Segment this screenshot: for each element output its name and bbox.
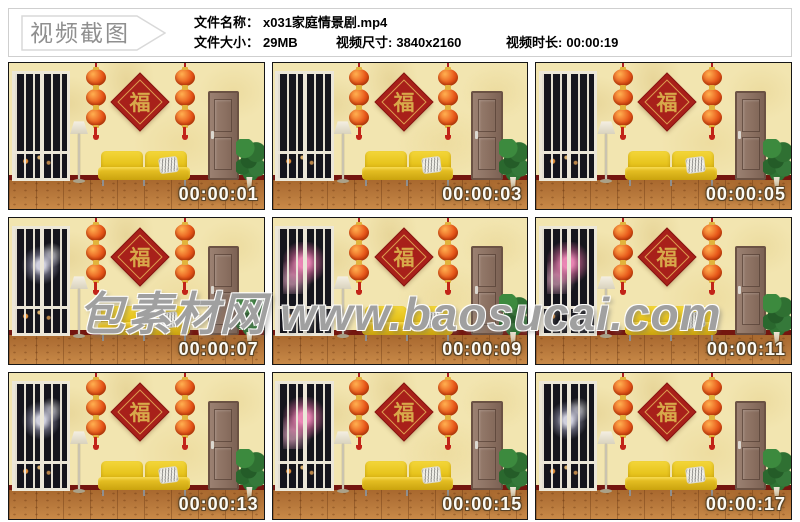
- lantern-icon: [702, 379, 722, 396]
- lantern-icon: [349, 399, 369, 416]
- lantern-tassel: [183, 437, 186, 446]
- lantern-icon: [86, 69, 106, 86]
- striped-pillow: [158, 466, 179, 484]
- potted-plant: [499, 294, 527, 344]
- lantern-tassel: [358, 127, 361, 136]
- frame-timestamp: 00:00:05: [706, 184, 786, 205]
- header-bar: 视频截图 文件名称：x031家庭情景剧.mp4 文件大小：29MB视频尺寸:38…: [8, 8, 792, 57]
- sofa-legs: [629, 335, 713, 341]
- lamp-base: [600, 179, 612, 183]
- wooden-door: [735, 91, 766, 179]
- window-divider: [303, 229, 307, 333]
- window-rail: [15, 151, 68, 154]
- lantern-icon: [702, 224, 722, 241]
- lantern-icon: [86, 244, 106, 261]
- file-size-value: 29MB: [263, 35, 298, 50]
- potted-plant: [763, 449, 791, 499]
- lantern-icon: [86, 419, 106, 436]
- door-knob: [211, 286, 214, 294]
- lattice-window: [12, 381, 71, 491]
- window-divider: [567, 74, 571, 178]
- lamp-base: [600, 489, 612, 493]
- fu-banner-text: 福: [384, 82, 424, 122]
- door-knob: [475, 441, 478, 449]
- lamp-shade: [334, 276, 352, 289]
- lantern-string-right: [174, 63, 196, 143]
- plant-leaves: [236, 139, 264, 180]
- video-frame-thumbnail[interactable]: 福 00:00:17: [535, 372, 792, 520]
- lamp-shade: [597, 121, 615, 134]
- lantern-icon: [613, 224, 633, 241]
- plant-leaves: [763, 294, 791, 335]
- wooden-door: [471, 401, 502, 489]
- yellow-sofa: [98, 151, 190, 186]
- window-rail: [542, 151, 595, 154]
- lantern-icon: [613, 69, 633, 86]
- video-dimensions-group: 视频尺寸:3840x2160: [336, 33, 506, 53]
- video-duration-value: 00:00:19: [566, 35, 618, 50]
- lantern-tassel: [94, 282, 97, 291]
- door-knob: [475, 286, 478, 294]
- lantern-icon: [438, 399, 458, 416]
- lantern-tassel: [447, 437, 450, 446]
- window-rail: [542, 306, 595, 309]
- lantern-tassel: [183, 127, 186, 136]
- lantern-string-right: [701, 218, 723, 298]
- floor-lamp: [334, 431, 352, 492]
- lantern-icon: [175, 399, 195, 416]
- floor-lamp: [597, 121, 615, 182]
- lantern-icon: [438, 69, 458, 86]
- lattice-window: [275, 226, 334, 336]
- video-frame-thumbnail[interactable]: 福 00:00:03: [272, 62, 529, 210]
- yellow-sofa: [362, 461, 454, 496]
- lantern-icon: [702, 89, 722, 106]
- video-duration-label: 视频时长:: [506, 35, 562, 50]
- yellow-sofa: [362, 306, 454, 341]
- lamp-base: [73, 489, 85, 493]
- lantern-icon: [349, 244, 369, 261]
- lantern-string-right: [701, 63, 723, 143]
- lantern-icon: [613, 264, 633, 281]
- striped-pillow: [685, 156, 706, 174]
- floor-lamp: [70, 431, 88, 492]
- window-divider: [567, 229, 571, 333]
- lantern-icon: [613, 419, 633, 436]
- lattice-window: [12, 226, 71, 336]
- lantern-icon: [86, 379, 106, 396]
- file-info: 文件名称：x031家庭情景剧.mp4 文件大小：29MB视频尺寸:3840x21…: [194, 13, 618, 53]
- file-name-row: 文件名称：x031家庭情景剧.mp4: [194, 13, 618, 33]
- potted-plant: [499, 449, 527, 499]
- lantern-tassel: [358, 437, 361, 446]
- lantern-icon: [438, 379, 458, 396]
- lantern-tassel: [711, 282, 714, 291]
- plant-leaves: [499, 294, 527, 335]
- lantern-icon: [175, 379, 195, 396]
- lattice-window: [12, 71, 71, 181]
- floor-lamp: [334, 121, 352, 182]
- lantern-icon: [349, 89, 369, 106]
- lantern-tassel: [94, 437, 97, 446]
- sofa-legs: [365, 490, 449, 496]
- sofa-legs: [365, 335, 449, 341]
- lamp-pole: [78, 444, 80, 489]
- lantern-string-right: [174, 373, 196, 453]
- lamp-base: [337, 334, 349, 338]
- floor-lamp: [334, 276, 352, 337]
- video-frame-thumbnail[interactable]: 福 00:00:11: [535, 217, 792, 365]
- frames-grid: 福 00:00:01: [8, 62, 792, 520]
- yellow-sofa: [625, 151, 717, 186]
- lamp-shade: [70, 276, 88, 289]
- fu-diamond-banner: 福: [112, 384, 169, 441]
- fu-diamond-banner: 福: [376, 229, 433, 286]
- lattice-window: [539, 71, 598, 181]
- yellow-sofa: [362, 151, 454, 186]
- lamp-pole: [605, 134, 607, 179]
- fu-diamond-banner: 福: [639, 229, 696, 286]
- lamp-base: [73, 334, 85, 338]
- wooden-door: [208, 246, 239, 334]
- wooden-door: [735, 246, 766, 334]
- lantern-icon: [613, 399, 633, 416]
- sofa-legs: [629, 180, 713, 186]
- lamp-pole: [78, 289, 80, 334]
- lantern-string-right: [701, 373, 723, 453]
- lantern-icon: [613, 109, 633, 126]
- lattice-window: [275, 381, 334, 491]
- lantern-icon: [438, 89, 458, 106]
- frame-timestamp: 00:00:09: [442, 339, 522, 360]
- fu-diamond-banner: 福: [376, 384, 433, 441]
- fu-banner-text: 福: [120, 82, 160, 122]
- wooden-door: [208, 91, 239, 179]
- lantern-string-right: [437, 373, 459, 453]
- lantern-icon: [613, 244, 633, 261]
- lamp-pole: [78, 134, 80, 179]
- lamp-shade: [334, 121, 352, 134]
- door-knob: [211, 441, 214, 449]
- fu-diamond-banner: 福: [112, 229, 169, 286]
- video-dimensions-value: 3840x2160: [396, 35, 461, 50]
- striped-pillow: [685, 311, 706, 329]
- fu-diamond-banner: 福: [112, 74, 169, 131]
- lamp-shade: [597, 431, 615, 444]
- frame-timestamp: 00:00:17: [706, 494, 786, 515]
- lantern-icon: [175, 224, 195, 241]
- door-knob: [475, 131, 478, 139]
- plant-leaves: [763, 449, 791, 490]
- screenshot-badge: 视频截图: [21, 15, 166, 51]
- window-divider: [40, 74, 44, 178]
- lamp-pole: [342, 134, 344, 179]
- lantern-icon: [438, 419, 458, 436]
- file-name-value: x031家庭情景剧.mp4: [263, 15, 387, 30]
- fu-diamond-banner: 福: [639, 384, 696, 441]
- file-name-label: 文件名称：: [194, 15, 259, 30]
- lantern-icon: [349, 379, 369, 396]
- lantern-tassel: [711, 127, 714, 136]
- lantern-icon: [702, 264, 722, 281]
- striped-pillow: [158, 311, 179, 329]
- fu-banner-text: 福: [647, 392, 687, 432]
- frame-timestamp: 00:00:07: [179, 339, 259, 360]
- file-meta-row: 文件大小：29MB视频尺寸:3840x2160视频时长:00:00:19: [194, 33, 618, 53]
- sofa-legs: [102, 490, 186, 496]
- lantern-icon: [86, 224, 106, 241]
- badge-label: 视频截图: [21, 15, 139, 51]
- sofa-legs: [102, 180, 186, 186]
- wooden-door: [208, 401, 239, 489]
- floor-lamp: [597, 276, 615, 337]
- lantern-tassel: [621, 127, 624, 136]
- lamp-shade: [70, 121, 88, 134]
- lantern-icon: [349, 224, 369, 241]
- lantern-icon: [438, 109, 458, 126]
- window-rail: [278, 151, 331, 154]
- lamp-shade: [70, 431, 88, 444]
- lantern-icon: [86, 399, 106, 416]
- lantern-string-right: [174, 218, 196, 298]
- floor-lamp: [597, 431, 615, 492]
- door-knob: [738, 441, 741, 449]
- yellow-sofa: [98, 461, 190, 496]
- lantern-icon: [702, 109, 722, 126]
- lantern-icon: [349, 69, 369, 86]
- lattice-window: [539, 226, 598, 336]
- video-frame-thumbnail[interactable]: 福 00:00:09: [272, 217, 529, 365]
- lantern-tassel: [447, 127, 450, 136]
- door-knob: [738, 286, 741, 294]
- yellow-sofa: [98, 306, 190, 341]
- potted-plant: [763, 294, 791, 344]
- lantern-icon: [438, 244, 458, 261]
- lantern-tassel: [94, 127, 97, 136]
- frame-timestamp: 00:00:13: [179, 494, 259, 515]
- lantern-tassel: [621, 437, 624, 446]
- lantern-tassel: [621, 282, 624, 291]
- fu-banner-text: 福: [384, 237, 424, 277]
- video-dimensions-label: 视频尺寸:: [336, 35, 392, 50]
- file-size-group: 文件大小：29MB: [194, 33, 336, 53]
- plant-leaves: [763, 139, 791, 180]
- lantern-icon: [613, 89, 633, 106]
- window-rail: [15, 461, 68, 464]
- window-rail: [278, 306, 331, 309]
- video-frame-thumbnail[interactable]: 福 00:00:01: [8, 62, 265, 210]
- window-divider: [303, 74, 307, 178]
- lamp-shade: [597, 276, 615, 289]
- video-frame-thumbnail[interactable]: 福 00:00:13: [8, 372, 265, 520]
- lantern-tassel: [183, 282, 186, 291]
- plant-leaves: [499, 449, 527, 490]
- striped-pillow: [685, 466, 706, 484]
- fu-banner-text: 福: [647, 237, 687, 277]
- lantern-icon: [438, 224, 458, 241]
- potted-plant: [236, 294, 264, 344]
- frame-timestamp: 00:00:01: [179, 184, 259, 205]
- video-frame-thumbnail[interactable]: 福 00:00:07: [8, 217, 265, 365]
- lantern-string-right: [437, 218, 459, 298]
- door-knob: [738, 131, 741, 139]
- lantern-icon: [175, 69, 195, 86]
- potted-plant: [236, 449, 264, 499]
- lantern-icon: [702, 419, 722, 436]
- lantern-tassel: [358, 282, 361, 291]
- window-divider: [303, 384, 307, 488]
- video-frame-thumbnail[interactable]: 福 00:00:05: [535, 62, 792, 210]
- lamp-shade: [334, 431, 352, 444]
- lantern-icon: [349, 419, 369, 436]
- lamp-base: [337, 179, 349, 183]
- lamp-base: [600, 334, 612, 338]
- fu-banner-text: 福: [120, 237, 160, 277]
- potted-plant: [763, 139, 791, 189]
- sofa-legs: [365, 180, 449, 186]
- sofa-legs: [629, 490, 713, 496]
- lantern-icon: [349, 109, 369, 126]
- lattice-window: [539, 381, 598, 491]
- lamp-base: [73, 179, 85, 183]
- fu-banner-text: 福: [647, 82, 687, 122]
- fu-diamond-banner: 福: [376, 74, 433, 131]
- lamp-pole: [605, 289, 607, 334]
- lantern-tassel: [447, 282, 450, 291]
- lantern-string-right: [437, 63, 459, 143]
- video-duration-group: 视频时长:00:00:19: [506, 33, 618, 53]
- wooden-door: [735, 401, 766, 489]
- lantern-icon: [613, 379, 633, 396]
- striped-pillow: [421, 311, 442, 329]
- lantern-icon: [702, 244, 722, 261]
- floor-lamp: [70, 276, 88, 337]
- window-divider: [567, 384, 571, 488]
- fu-banner-text: 福: [120, 392, 160, 432]
- wooden-door: [471, 91, 502, 179]
- door-knob: [211, 131, 214, 139]
- lantern-icon: [86, 109, 106, 126]
- lamp-pole: [342, 444, 344, 489]
- window-rail: [278, 461, 331, 464]
- frame-timestamp: 00:00:15: [442, 494, 522, 515]
- lantern-icon: [438, 264, 458, 281]
- video-frame-thumbnail[interactable]: 福 00:00:15: [272, 372, 529, 520]
- lantern-icon: [175, 109, 195, 126]
- plant-leaves: [236, 294, 264, 335]
- fu-diamond-banner: 福: [639, 74, 696, 131]
- lantern-icon: [86, 264, 106, 281]
- sofa-legs: [102, 335, 186, 341]
- window-rail: [542, 461, 595, 464]
- window-divider: [40, 229, 44, 333]
- lantern-icon: [175, 89, 195, 106]
- lantern-icon: [702, 69, 722, 86]
- frame-timestamp: 00:00:11: [707, 339, 786, 360]
- striped-pillow: [158, 156, 179, 174]
- lattice-window: [275, 71, 334, 181]
- plant-leaves: [499, 139, 527, 180]
- lantern-icon: [86, 89, 106, 106]
- window-divider: [40, 384, 44, 488]
- lamp-pole: [605, 444, 607, 489]
- striped-pillow: [421, 466, 442, 484]
- striped-pillow: [421, 156, 442, 174]
- potted-plant: [236, 139, 264, 189]
- floor-lamp: [70, 121, 88, 182]
- lantern-icon: [349, 264, 369, 281]
- fu-banner-text: 福: [384, 392, 424, 432]
- wooden-door: [471, 246, 502, 334]
- plant-leaves: [236, 449, 264, 490]
- file-size-label: 文件大小：: [194, 35, 259, 50]
- lantern-icon: [175, 419, 195, 436]
- lantern-icon: [175, 264, 195, 281]
- window-rail: [15, 306, 68, 309]
- yellow-sofa: [625, 306, 717, 341]
- frame-timestamp: 00:00:03: [442, 184, 522, 205]
- lamp-pole: [342, 289, 344, 334]
- lantern-tassel: [711, 437, 714, 446]
- potted-plant: [499, 139, 527, 189]
- lamp-base: [337, 489, 349, 493]
- yellow-sofa: [625, 461, 717, 496]
- lantern-icon: [175, 244, 195, 261]
- lantern-icon: [702, 399, 722, 416]
